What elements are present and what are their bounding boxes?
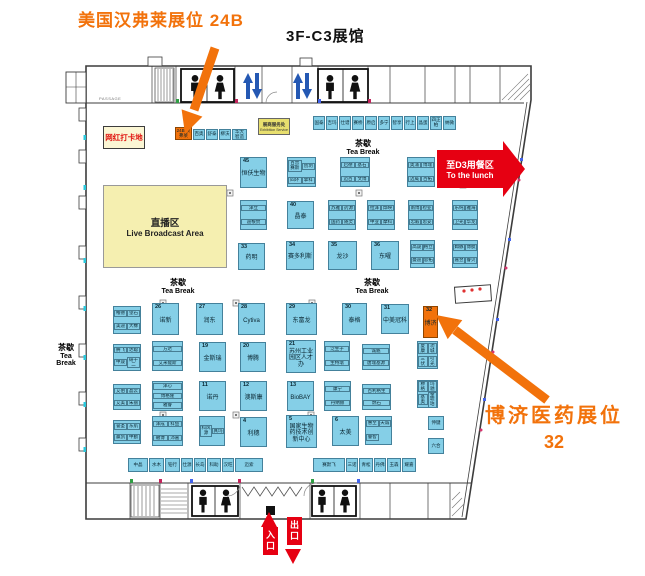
booth: 南博检亚忠毅思妥 xyxy=(408,200,434,230)
booth-cell: 夏康 xyxy=(418,343,428,354)
booth-number: 40 xyxy=(290,202,296,208)
live-area-label-cn: 直播区 xyxy=(151,215,180,229)
tea-break-label: 茶歇Tea Break xyxy=(356,277,389,295)
booth-30: 30泰格 xyxy=(342,303,367,335)
booth-cell: 百利格生 xyxy=(363,388,390,395)
booth-35: 35龙沙 xyxy=(328,241,357,270)
booth-cell: 迪根赞 xyxy=(241,219,266,226)
booth: 长岛 xyxy=(194,458,206,472)
booth-label: 华大智造 xyxy=(233,130,246,139)
booth-34: 34赛多利斯 xyxy=(286,241,314,270)
booth: 康宁丹纳赫 xyxy=(324,381,351,411)
booth-cell: 睿贝 xyxy=(465,257,477,264)
booth-cell: 国药 xyxy=(329,219,342,226)
booth-29: 29东富龙 xyxy=(286,303,317,335)
booth-label: 百奥 xyxy=(195,132,204,137)
booth-label: 丹佛 xyxy=(376,463,385,468)
booth-number: 29 xyxy=(289,304,295,310)
booth-number: 31 xyxy=(384,305,390,311)
booth-33: 33药明 xyxy=(238,243,265,270)
booth-cell: 艾米能斯 xyxy=(153,360,182,367)
booth-number: 20 xyxy=(243,343,249,349)
booth-cell: 真玛 xyxy=(212,428,224,435)
booth-cell: 华龙 xyxy=(465,219,477,226)
booth-number: 19 xyxy=(202,343,208,349)
booth: 国泰 xyxy=(313,116,325,130)
booth-label: 恒仸生物 xyxy=(241,167,265,178)
booth-label: 博济 xyxy=(424,317,436,328)
booth-19: 19金斯瑞 xyxy=(199,342,226,372)
booth-label: 东曜 xyxy=(379,250,391,261)
booth-12: 12澳斯康 xyxy=(240,381,267,411)
booth-label: 利穗 xyxy=(247,427,259,438)
booth-label: 国泰 xyxy=(315,121,324,126)
tea-break-label: 茶歇Tea Break xyxy=(162,277,195,295)
booth-cell: 榷德 xyxy=(114,310,127,317)
booth-32: 32博济 xyxy=(423,306,438,338)
booth-20: 20博腾 xyxy=(240,342,266,372)
booth-cell: 金琥珀 xyxy=(428,392,438,408)
booth-cell: 雅海 xyxy=(465,205,477,212)
booth: 耀嘉 xyxy=(402,458,416,472)
booth-label: 药明 xyxy=(245,251,257,262)
booth-cell: 烨映 xyxy=(381,205,394,212)
booth-cell: 思妥 xyxy=(421,219,433,226)
service-label-en: Exhibition Service xyxy=(260,128,288,132)
booth-5: 5国家生物药技术创新中心 xyxy=(286,415,317,448)
booth-label: 太美 xyxy=(339,426,351,437)
booth: 伸键 xyxy=(428,416,444,430)
booth: 方达艾米能斯 xyxy=(152,341,183,371)
booth-cell: 沛嘉 xyxy=(168,435,183,442)
booth-cell: 四环 xyxy=(288,177,302,184)
booth-label: 诺新 xyxy=(159,314,171,325)
booth: 仕源 xyxy=(181,458,193,472)
booth-cell: 基石 xyxy=(355,162,369,169)
booth-label: 润东 xyxy=(203,314,215,325)
booth-11: 11诺丹 xyxy=(199,381,226,411)
booth: 柳沃 xyxy=(219,129,231,140)
booth-label: 澳斯康 xyxy=(244,391,262,402)
stairs-icon xyxy=(131,485,159,517)
booth: 乐纯雅海卫光华龙 xyxy=(452,200,478,230)
booth-cell: 百拓 xyxy=(421,176,434,183)
booth: 原启 xyxy=(365,116,377,130)
booth-cell: 燃石 xyxy=(363,400,390,407)
booth-cell: 迈威 xyxy=(408,176,421,183)
booth-28: 28Cytiva xyxy=(238,303,265,335)
booth: 榷德望石美迪大橡 xyxy=(113,306,141,334)
booth-label: 纳微 xyxy=(445,121,454,126)
booth-label: 晶蛋 xyxy=(419,121,428,126)
booth-4: 4利穗 xyxy=(240,417,267,447)
booth-label: 长岛 xyxy=(196,463,205,468)
booth: 六合 xyxy=(428,438,444,454)
booth-number: 36 xyxy=(374,242,380,248)
booth-cell: 忠毅 xyxy=(409,219,421,226)
booth: 惠至天诚睿智 xyxy=(365,416,392,445)
booth-cell: 艾美 xyxy=(114,400,127,407)
booth: 水木 xyxy=(149,458,164,472)
booth: 四正柏 xyxy=(430,116,442,130)
booth: 舒泰 xyxy=(206,129,218,140)
booth: 晶蛋 xyxy=(417,116,429,130)
booth-number: 13 xyxy=(290,382,296,388)
booth-36: 36东曜 xyxy=(371,241,399,270)
booth: 多宁 xyxy=(378,116,390,130)
hall-title: 3F-C3展馆 xyxy=(286,25,365,46)
restroom-top-right xyxy=(318,69,368,102)
booth-cell: 启德 xyxy=(341,162,355,169)
booth-label: BioBAY xyxy=(290,391,310,402)
booth: 汉旺 xyxy=(222,458,234,472)
booth-cell: 艾伯 xyxy=(114,388,127,395)
booth-cell: 科鱼 xyxy=(168,421,183,428)
booth-cell: 引光 xyxy=(428,356,438,367)
booth: 行上 xyxy=(404,116,416,130)
live-broadcast-area: 直播区 Live Broadcast Area xyxy=(103,185,227,268)
booth-cell: 磁博 xyxy=(153,435,168,442)
booth: 夏康功城三伏引光 xyxy=(417,341,438,369)
booth: 百奥 xyxy=(193,129,205,140)
booth-number: 28 xyxy=(241,304,247,310)
exterior-structure xyxy=(66,72,86,103)
booth: 纳微 xyxy=(443,116,456,130)
booth-cell: 奥浦 xyxy=(408,162,421,169)
booth-label: 玉森 xyxy=(390,463,399,468)
booth-cell: 擎科 xyxy=(302,177,316,184)
booth: 科风源真玛 xyxy=(199,416,225,446)
annotation-boji-line1: 博济医药展位 xyxy=(468,399,640,428)
booth-number: 5 xyxy=(289,416,292,422)
booth-cell: 方达 xyxy=(153,346,182,353)
booth-label: 博腾 xyxy=(247,352,259,363)
exit-label: 出口 xyxy=(287,517,302,545)
booth-number: 27 xyxy=(199,304,205,310)
booth-label: 四正柏 xyxy=(431,118,441,127)
booth: 迈索 xyxy=(235,458,263,472)
booth-cell: 泛生子 xyxy=(325,346,349,353)
booth-label: 柳沃 xyxy=(221,132,230,137)
booth-cell: 中勤 xyxy=(127,434,140,441)
booth: 诚魁唐瑞基源 xyxy=(362,344,390,370)
booth-cell: 美迪 xyxy=(114,323,127,330)
booth-cell: 达聪 xyxy=(127,347,140,354)
booth: 誉圣东航赢凯中勤 xyxy=(113,420,141,444)
booth-24B: 24B 汉弗莱 xyxy=(175,127,192,140)
booth: 赛桥 xyxy=(352,116,364,130)
photo-spot-area: 网红打卡地 xyxy=(103,126,145,149)
restroom-bottom-right xyxy=(312,486,356,516)
booth-cell: 百普赛斯 xyxy=(288,160,302,171)
booth: 泛生子生特瑞 xyxy=(324,341,350,371)
booth-cell: 创玥 xyxy=(302,163,316,170)
booth-label: 赛多利斯 xyxy=(288,250,312,261)
booth-cell: 拉泽 xyxy=(368,205,381,212)
tea-break-label: 茶歇Tea Break xyxy=(347,138,380,156)
booth-cell: 大橡 xyxy=(127,323,140,330)
booth-cell: 格立 xyxy=(423,244,435,251)
booth-40: 40晶泰 xyxy=(287,201,314,229)
stairs-icon xyxy=(155,68,174,102)
booth-label: 耀嘉 xyxy=(405,463,414,468)
booth-cell: 博瑞 xyxy=(421,162,434,169)
booth-cell: 功城 xyxy=(428,343,438,354)
booth-label: 赛默飞 xyxy=(322,463,336,468)
booth-label: 水木 xyxy=(152,463,161,468)
booth-cell: 三伏 xyxy=(418,356,428,367)
live-area-label-en: Live Broadcast Area xyxy=(126,229,203,238)
booth-number: 6 xyxy=(335,417,338,423)
booth: 泽立迪根赞 xyxy=(240,200,267,230)
booth-cell: 基奥 xyxy=(418,394,428,405)
annotation-humphrey-24b: 美国汉弗莱展位 24B xyxy=(78,6,244,31)
booth-label: 仕谱 xyxy=(341,121,350,126)
booth-cell: 东航 xyxy=(127,423,140,430)
booth-label: 智享 xyxy=(393,121,402,126)
booth: 玉森 xyxy=(387,458,401,472)
booth-number: 33 xyxy=(241,244,247,250)
booth-cell: 文博 xyxy=(355,176,369,183)
photo-spot-label: 网红打卡地 xyxy=(105,132,143,143)
booth-cell: 丹纳赫 xyxy=(325,400,350,407)
booth-label: 24B 汉弗莱 xyxy=(176,129,191,138)
booth: 青松 xyxy=(359,458,373,472)
booth-6: 6太美 xyxy=(332,416,359,446)
booth: 奥浦博瑞迈威百拓 xyxy=(407,157,435,187)
booth: 赛默飞 xyxy=(313,458,345,472)
booth-cell: 天诚 xyxy=(379,420,392,427)
booth-label: 吉玛 xyxy=(328,121,337,126)
booth-label: 金斯瑞 xyxy=(203,352,221,363)
booth: 吉玛 xyxy=(326,116,338,130)
booth: 智享 xyxy=(391,116,403,130)
booth-label: 科助 xyxy=(210,463,219,468)
booth-label: 铂行 xyxy=(168,463,177,468)
booth-cell: 博肽 xyxy=(465,244,477,251)
booth-cell: 惠至 xyxy=(366,420,379,427)
booth-label: 三诺 xyxy=(348,463,357,468)
booth-label: 中晶 xyxy=(134,463,143,468)
booth-cell: 望石 xyxy=(127,310,140,317)
entrance-arrow-icon xyxy=(261,512,277,527)
vestibule xyxy=(454,285,491,303)
booth-number: 32 xyxy=(426,307,432,313)
booth-cell: 随灵 xyxy=(342,219,355,226)
booth-cell: 腾飞 xyxy=(114,347,127,354)
booth: 穆格玛驰基奥金琥珀 xyxy=(417,380,438,408)
booth-cell: 唐瑞基源 xyxy=(363,360,389,367)
booth-number: 45 xyxy=(243,158,249,164)
booth: 铂行 xyxy=(165,458,180,472)
exit-arrow-icon xyxy=(285,549,301,564)
booth-cell: 检亚 xyxy=(421,205,433,212)
booth-number: 4 xyxy=(243,418,246,424)
booth-number: 21 xyxy=(289,341,295,347)
booth-cell: 康宁 xyxy=(325,386,350,393)
booth: 拉泽烨映中亚摩科 xyxy=(367,200,395,230)
booth-label: 中美冠科 xyxy=(383,314,407,325)
booth-label: 原启 xyxy=(367,121,376,126)
booth-cell: 中晟 xyxy=(114,359,127,366)
lunch-label-en: To the lunch xyxy=(447,171,494,180)
floor-plan: 网红打卡地 直播区 Live Broadcast Area 展商服务处 Exhi… xyxy=(0,0,645,576)
booth: 中晶 xyxy=(128,458,148,472)
booth-number: 11 xyxy=(202,382,208,388)
booth-label: 晶泰 xyxy=(294,210,306,221)
floorplan-walls xyxy=(0,0,645,576)
booth-label: 仕源 xyxy=(183,463,192,468)
booth-cell: 朱丽 xyxy=(127,400,140,407)
booth-cell: 研十二 xyxy=(127,357,140,368)
booth-label: 国家生物药技术创新中心 xyxy=(287,420,316,444)
lunch-label-cn: 至D3用餐区 xyxy=(446,158,494,171)
booth: 科助 xyxy=(207,458,221,472)
booth-21: 21苏州工业园区人才办 xyxy=(286,340,316,373)
booth-cell: 泽成 xyxy=(153,421,168,428)
booth-label: 汉旺 xyxy=(224,463,233,468)
booth: 苏雅药源国药随灵 xyxy=(328,200,356,230)
booth-label: 迈索 xyxy=(245,463,254,468)
booth-number: 26 xyxy=(155,304,161,310)
booth-label: 赛桥 xyxy=(354,121,363,126)
booth-label: 伸键 xyxy=(432,421,441,426)
booth-cell: 穆格 xyxy=(418,381,428,392)
booth: 仕谱 xyxy=(339,116,351,130)
booth: 泽心博格隆雅睿 xyxy=(152,381,183,411)
booth-label: 东富龙 xyxy=(292,314,310,325)
booth-cell: 药源 xyxy=(342,205,355,212)
booth: 艾伯晶云艾美朱丽 xyxy=(113,384,141,410)
booth-number: 12 xyxy=(243,382,249,388)
booth-label: 苏州工业园区人才办 xyxy=(287,345,315,369)
passage-label: PASSAGE xyxy=(99,96,121,101)
booth-26: 26诺新 xyxy=(152,303,179,335)
booth-cell: 曼迪 xyxy=(411,257,423,264)
booth-cell: 诚魁 xyxy=(363,348,389,355)
booth-cell: 南博 xyxy=(409,205,421,212)
booth: 启德基石迈百文博 xyxy=(340,157,370,187)
booth-cell: 泽心 xyxy=(153,383,182,390)
booth: 三诺 xyxy=(346,458,358,472)
booth-31: 31中美冠科 xyxy=(381,304,409,334)
booth-cell: 生特瑞 xyxy=(325,360,349,367)
booth-label: Cytiva xyxy=(243,314,260,325)
booth: 丹佛 xyxy=(374,458,386,472)
booth: 姆脉博肽嘉翌睿贝 xyxy=(452,240,478,268)
booth-label: 龙沙 xyxy=(336,250,348,261)
booth-cell: 高晟 xyxy=(411,244,423,251)
booth-cell: 睿智 xyxy=(366,434,379,441)
booth-number: 34 xyxy=(289,242,295,248)
booth-cell: 雅睿 xyxy=(153,402,182,409)
booth-label: 六合 xyxy=(432,444,441,449)
booth-cell: 卫光 xyxy=(453,219,465,226)
booth-13: 13BioBAY xyxy=(287,381,314,411)
booth-label: 泰格 xyxy=(348,314,360,325)
booth-cell: 泽立 xyxy=(241,205,266,212)
booth: 百利格生燃石 xyxy=(362,384,391,410)
exhibition-service-desk: 展商服务处 Exhibition Service xyxy=(258,118,290,135)
entrance-label: 入口 xyxy=(263,527,278,555)
booth-cell: 赢凯 xyxy=(114,434,127,441)
booth-cell: 乐纯 xyxy=(453,205,465,212)
booth-cell: 思拓 xyxy=(423,257,435,264)
booth-label: 诺丹 xyxy=(206,391,218,402)
to-lunch-arrow: 至D3用餐区 To the lunch xyxy=(437,150,503,188)
booth-cell: 博格隆 xyxy=(153,393,182,400)
booth-cell: 中亚 xyxy=(368,219,381,226)
tea-break-label: 茶歇TeaBreak xyxy=(56,342,75,367)
booth-cell: 嘉翌 xyxy=(453,257,465,264)
booth-cell: 晶云 xyxy=(127,388,140,395)
booth-label: 行上 xyxy=(406,121,415,126)
booth-label: 舒泰 xyxy=(208,132,217,137)
booth-cell: 姆脉 xyxy=(453,244,465,251)
booth-number: 35 xyxy=(331,242,337,248)
booth-cell: 摩科 xyxy=(381,219,394,226)
booth: 腾飞达聪中晟研十二 xyxy=(113,344,141,371)
booth-cell: 誉圣 xyxy=(114,423,127,430)
booth-cell: 迈百 xyxy=(341,176,355,183)
restroom-bottom-left xyxy=(192,486,238,516)
booth-label: 青松 xyxy=(362,463,371,468)
booth-27: 27润东 xyxy=(196,303,223,335)
restroom-top-left xyxy=(181,69,234,102)
annotation-boji-line2: 32 xyxy=(468,432,640,453)
booth: 高晟格立曼迪思拓 xyxy=(410,240,435,268)
booth: 华大智造 xyxy=(232,129,247,140)
booth-cell: 苏雅 xyxy=(329,205,342,212)
booth-number: 30 xyxy=(345,304,351,310)
booth-label: 多宁 xyxy=(380,121,389,126)
booth-45: 45恒仸生物 xyxy=(240,157,267,188)
booth: 泽成科鱼磁博沛嘉 xyxy=(152,416,183,446)
booth-cell: 科风源 xyxy=(200,425,212,436)
booth: 百普赛斯创玥四环擎科 xyxy=(287,157,316,187)
